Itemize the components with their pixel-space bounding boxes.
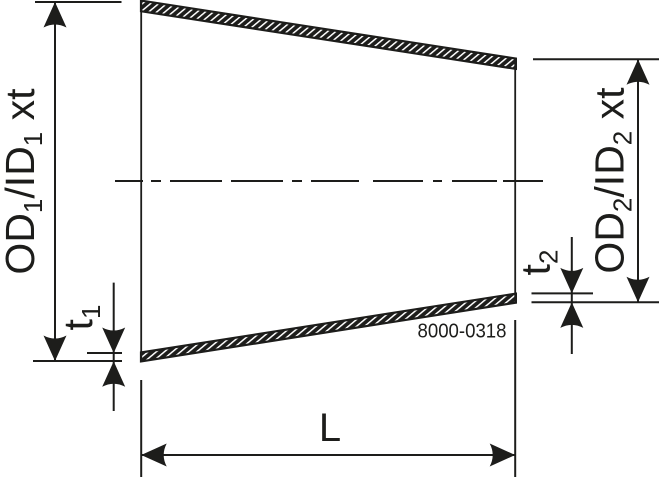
svg-text:L: L — [319, 406, 341, 450]
svg-text:OD1/ID1 xt: OD1/ID1 xt — [0, 88, 48, 275]
svg-text:8000-0318: 8000-0318 — [418, 321, 507, 343]
svg-text:OD2/ID2 xt: OD2/ID2 xt — [587, 87, 638, 274]
